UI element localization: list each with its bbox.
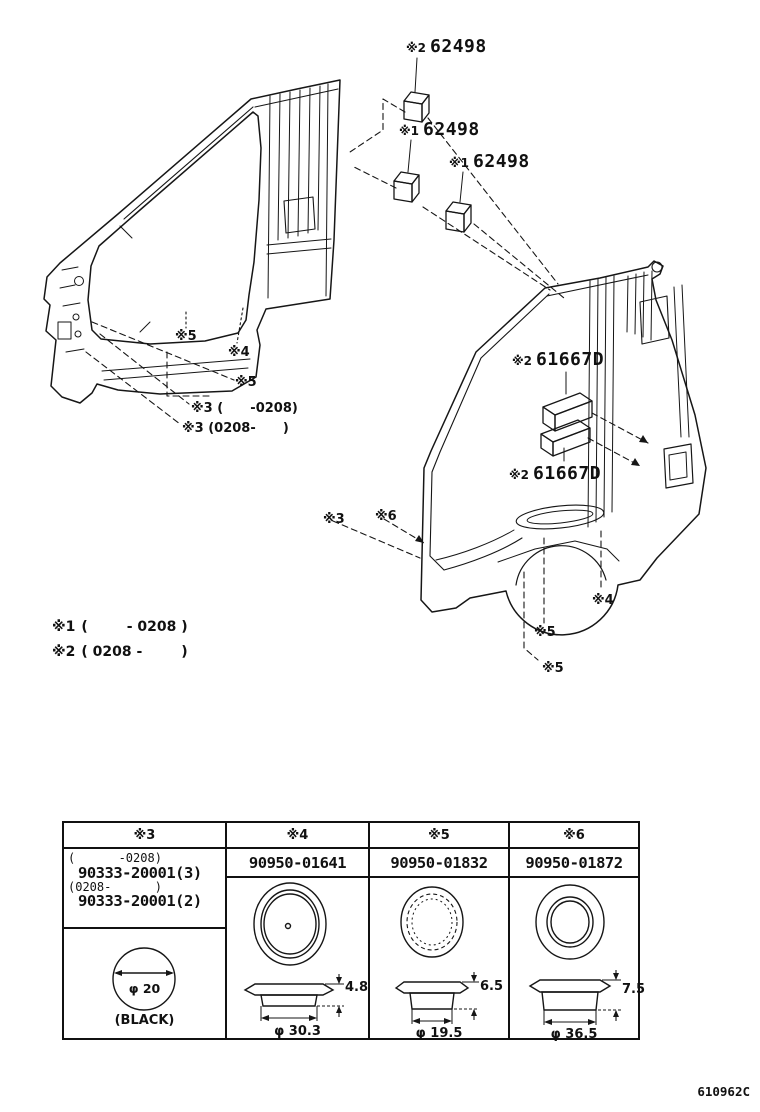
- grommet-height-label: 7.5: [622, 982, 645, 997]
- legend-line-1: ※1 ( - 0208 ): [52, 619, 188, 635]
- callout-prefix: ※1: [399, 124, 419, 138]
- table-column-3: ※3 ( -0208) 90333-20001(3) (0208- ) 9033…: [64, 823, 227, 1038]
- part-number-62498: 62498: [473, 151, 530, 172]
- table-column-6: ※6 90950-01872: [510, 823, 638, 1038]
- plug-diameter-label: φ 20: [64, 981, 225, 996]
- grommet-diameter-label: φ 19.5: [370, 1026, 508, 1041]
- column-header: ※6: [510, 823, 638, 849]
- part-number-cell-90333: ( -0208) 90333-20001(3) (0208- ) 90333-2…: [64, 849, 225, 929]
- table-column-4: ※4 90950-01641: [227, 823, 370, 1038]
- table-column-5: ※5 90950-01832: [370, 823, 510, 1038]
- part-number-90950-01641: 90950-01641: [227, 849, 368, 878]
- callout-62498-3: ※1 62498: [449, 151, 530, 172]
- grommet-height-label: 6.5: [480, 979, 503, 994]
- legend-range-1: ( - 0208 ): [81, 619, 187, 635]
- grommet-drawing-cell: 6.5 φ 19.5: [370, 878, 508, 1046]
- legend-line-2: ※2 ( 0208 - ): [52, 644, 188, 660]
- marker-3-early: ※3 ( -0208): [191, 401, 298, 416]
- packing-block-lower: [541, 420, 590, 456]
- document-number: 610962C: [640, 1084, 750, 1099]
- callout-prefix: ※2: [512, 354, 532, 368]
- grommet-drawing-01832: [370, 878, 506, 1042]
- parts-spec-table: ※3 ( -0208) 90333-20001(3) (0208- ) 9033…: [62, 821, 640, 1040]
- packing-block-upper: [543, 393, 592, 431]
- callout-61667D-1: ※2 61667D: [512, 349, 604, 370]
- callout-prefix: ※2: [509, 468, 529, 482]
- callout-prefix: ※2: [406, 41, 426, 55]
- grommet-drawing-cell: 4.8 φ 30.3: [227, 878, 368, 1046]
- marker-4: ※4: [592, 593, 614, 608]
- grommet-drawing-01641: [227, 878, 366, 1042]
- grommet-height-label: 4.8: [345, 980, 368, 995]
- grommet-drawing-01872: [510, 878, 638, 1042]
- marker-3-late: ※3 (0208- ): [182, 421, 289, 436]
- legend-range-2: ( 0208 - ): [81, 644, 187, 660]
- grommet-cube-2: [394, 172, 419, 202]
- part-number-61667D: 61667D: [533, 463, 601, 484]
- callout-prefix: ※1: [449, 156, 469, 170]
- grommet-drawing-cell: 7.5 φ 36.5: [510, 878, 638, 1046]
- marker-6: ※6: [375, 509, 397, 524]
- part-number-90333-3: 90333-20001(3): [68, 865, 222, 881]
- leader-arrowheads: [415, 435, 648, 543]
- right-panel-outline: [421, 261, 706, 635]
- marker-4: ※4: [228, 345, 250, 360]
- part-number-90950-01872: 90950-01872: [510, 849, 638, 878]
- plug-color-note: (BLACK): [64, 1013, 225, 1028]
- part-number-90950-01832: 90950-01832: [370, 849, 508, 878]
- parts-diagram-page: ※2 62498 ※1 62498 ※1 62498 ※2 61667D ※2 …: [0, 0, 760, 1112]
- part-number-61667D: 61667D: [536, 349, 604, 370]
- part-number-62498: 62498: [430, 36, 487, 57]
- callout-61667D-2: ※2 61667D: [509, 463, 601, 484]
- marker-5: ※5: [542, 661, 564, 676]
- left-panel-outline: [44, 80, 340, 403]
- grommet-diameter-label: φ 30.3: [227, 1024, 368, 1039]
- column-header: ※3: [64, 823, 225, 849]
- part-number-62498: 62498: [423, 119, 480, 140]
- legend-marker-2: ※2: [52, 644, 75, 660]
- range-early: ( -0208): [68, 852, 222, 865]
- grommet-cube-3: [446, 202, 471, 232]
- grommet-cube-1: [404, 92, 429, 122]
- plug-drawing-cell: φ 20 (BLACK): [64, 929, 225, 1049]
- grommet-diameter-label: φ 36.5: [510, 1027, 638, 1042]
- part-number-90333-2: 90333-20001(2): [68, 893, 222, 909]
- marker-3: ※3: [323, 512, 345, 527]
- column-header: ※4: [227, 823, 368, 849]
- marker-5: ※5: [235, 375, 257, 390]
- marker-5: ※5: [534, 625, 556, 640]
- callout-62498-2: ※1 62498: [399, 119, 480, 140]
- column-header: ※5: [370, 823, 508, 849]
- callout-62498-1: ※2 62498: [406, 36, 487, 57]
- marker-5: ※5: [175, 329, 197, 344]
- legend-marker-1: ※1: [52, 619, 75, 635]
